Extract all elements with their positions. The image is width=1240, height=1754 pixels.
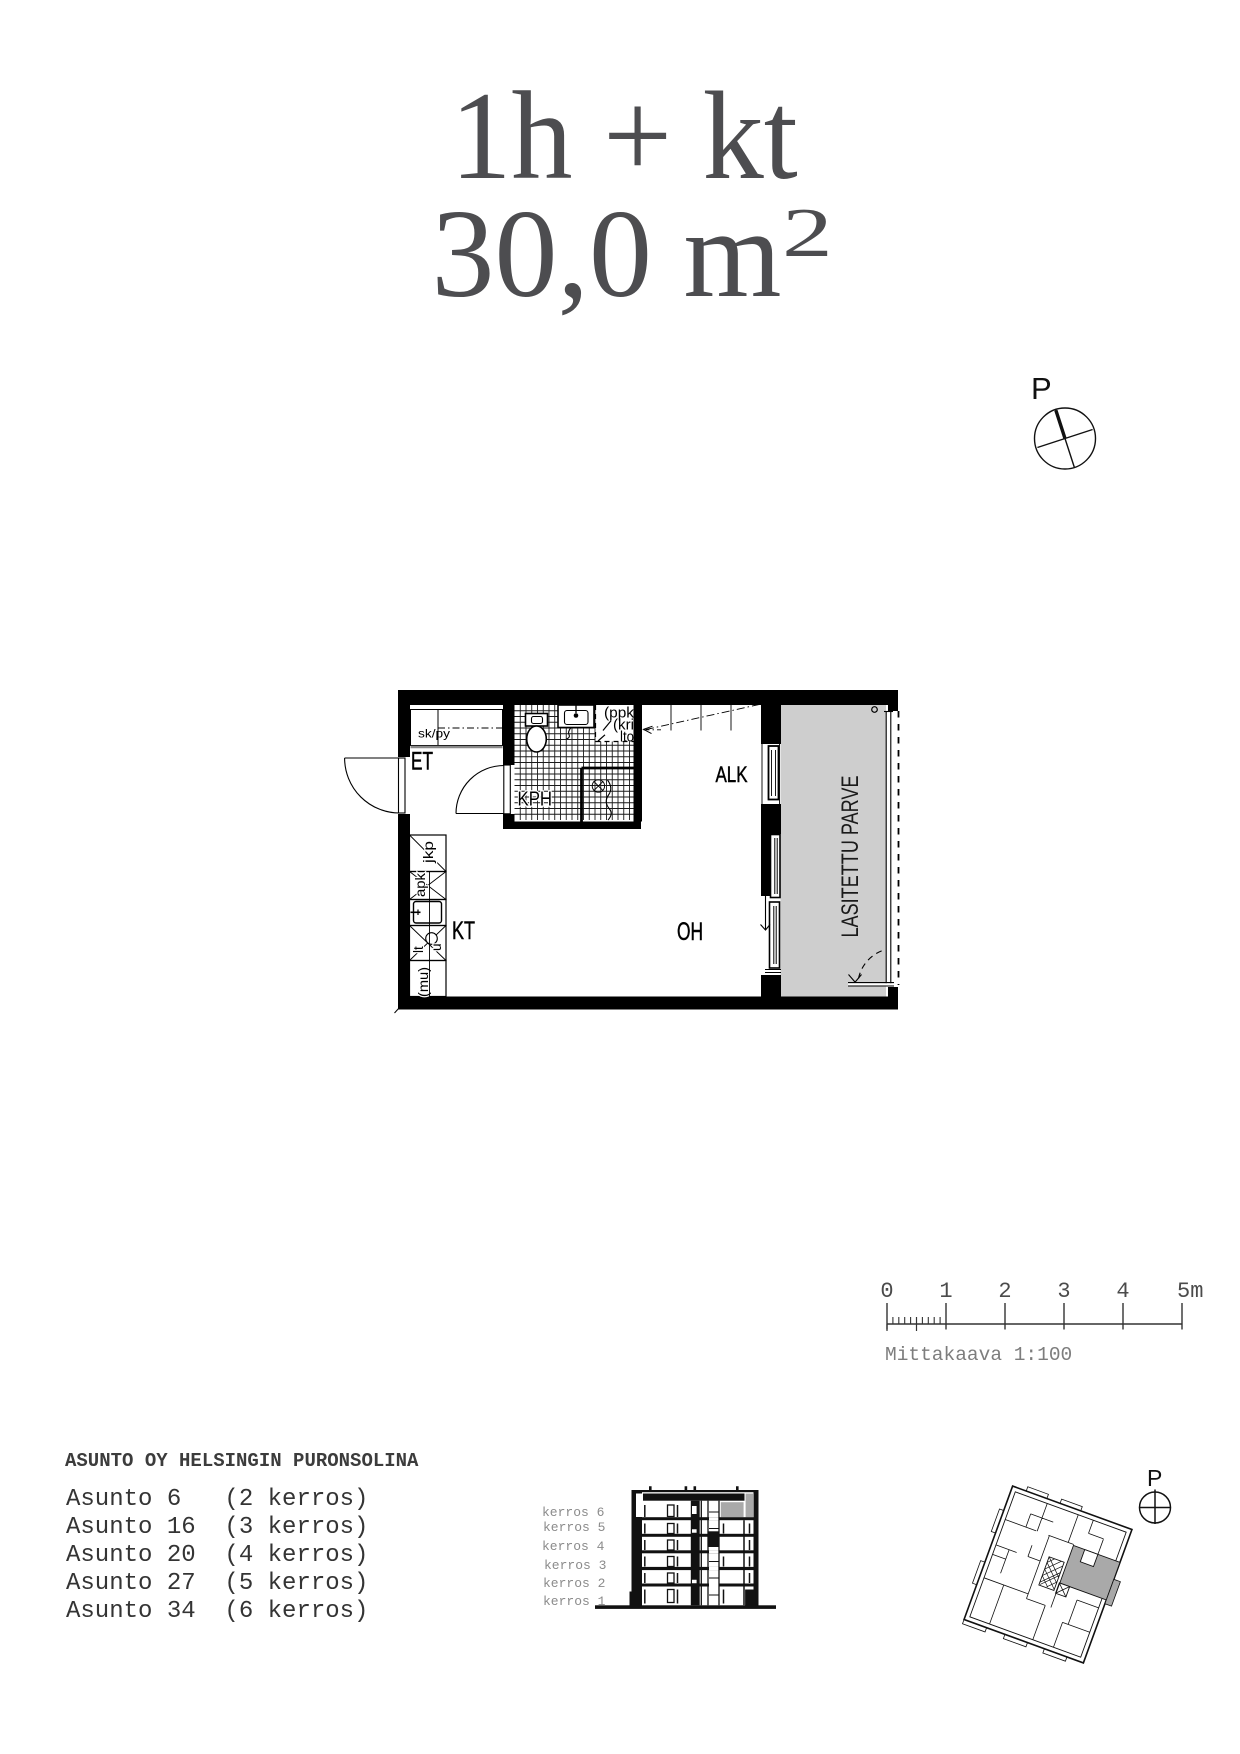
svg-text:lt: lt bbox=[411, 946, 426, 953]
svg-text:P: P bbox=[1147, 1465, 1162, 1491]
svg-text:sk/py: sk/py bbox=[418, 727, 450, 741]
svg-text:lto: lto bbox=[620, 729, 634, 746]
svg-text:kerros 3: kerros 3 bbox=[544, 1558, 606, 1573]
svg-text:3: 3 bbox=[1057, 1279, 1070, 1304]
svg-text:Asunto 6 (2 kerros): Asunto 6 (2 kerros) bbox=[66, 1486, 368, 1513]
svg-text:Asunto 27 (5 kerros): Asunto 27 (5 kerros) bbox=[66, 1570, 368, 1597]
svg-text:kerros 4: kerros 4 bbox=[542, 1539, 605, 1554]
svg-text:Asunto 34 (6 kerros): Asunto 34 (6 kerros) bbox=[66, 1598, 368, 1625]
svg-text:4: 4 bbox=[1116, 1279, 1129, 1304]
svg-text:Mittakaava 1:100: Mittakaava 1:100 bbox=[885, 1344, 1072, 1366]
svg-text:2: 2 bbox=[998, 1279, 1011, 1304]
svg-text:apk: apk bbox=[413, 873, 428, 897]
svg-text:kerros 5: kerros 5 bbox=[543, 1520, 605, 1535]
svg-text:OH: OH bbox=[677, 918, 703, 946]
svg-text:0: 0 bbox=[880, 1279, 893, 1304]
svg-text:kerros 2: kerros 2 bbox=[543, 1576, 605, 1591]
svg-text:kerros 6: kerros 6 bbox=[542, 1505, 604, 1520]
svg-text:Asunto 16 (3 kerros): Asunto 16 (3 kerros) bbox=[66, 1514, 368, 1541]
svg-text:Asunto 20 (4 kerros): Asunto 20 (4 kerros) bbox=[66, 1542, 368, 1569]
svg-text:KT: KT bbox=[452, 917, 475, 945]
svg-text:ALK: ALK bbox=[716, 762, 748, 787]
svg-text:LASITETTU PARVE: LASITETTU PARVE bbox=[837, 776, 864, 938]
svg-text:1: 1 bbox=[939, 1279, 952, 1304]
svg-text:P: P bbox=[1031, 371, 1052, 406]
svg-text:(mu): (mu) bbox=[416, 967, 431, 997]
svg-text:jkp: jkp bbox=[421, 841, 436, 864]
svg-text:KPH: KPH bbox=[518, 789, 553, 811]
svg-text:u: u bbox=[429, 943, 444, 951]
svg-text:ET: ET bbox=[411, 748, 433, 776]
svg-text:ASUNTO OY HELSINGIN PURONSOLIN: ASUNTO OY HELSINGIN PURONSOLINA bbox=[65, 1450, 419, 1472]
svg-text:5m: 5m bbox=[1177, 1279, 1203, 1304]
